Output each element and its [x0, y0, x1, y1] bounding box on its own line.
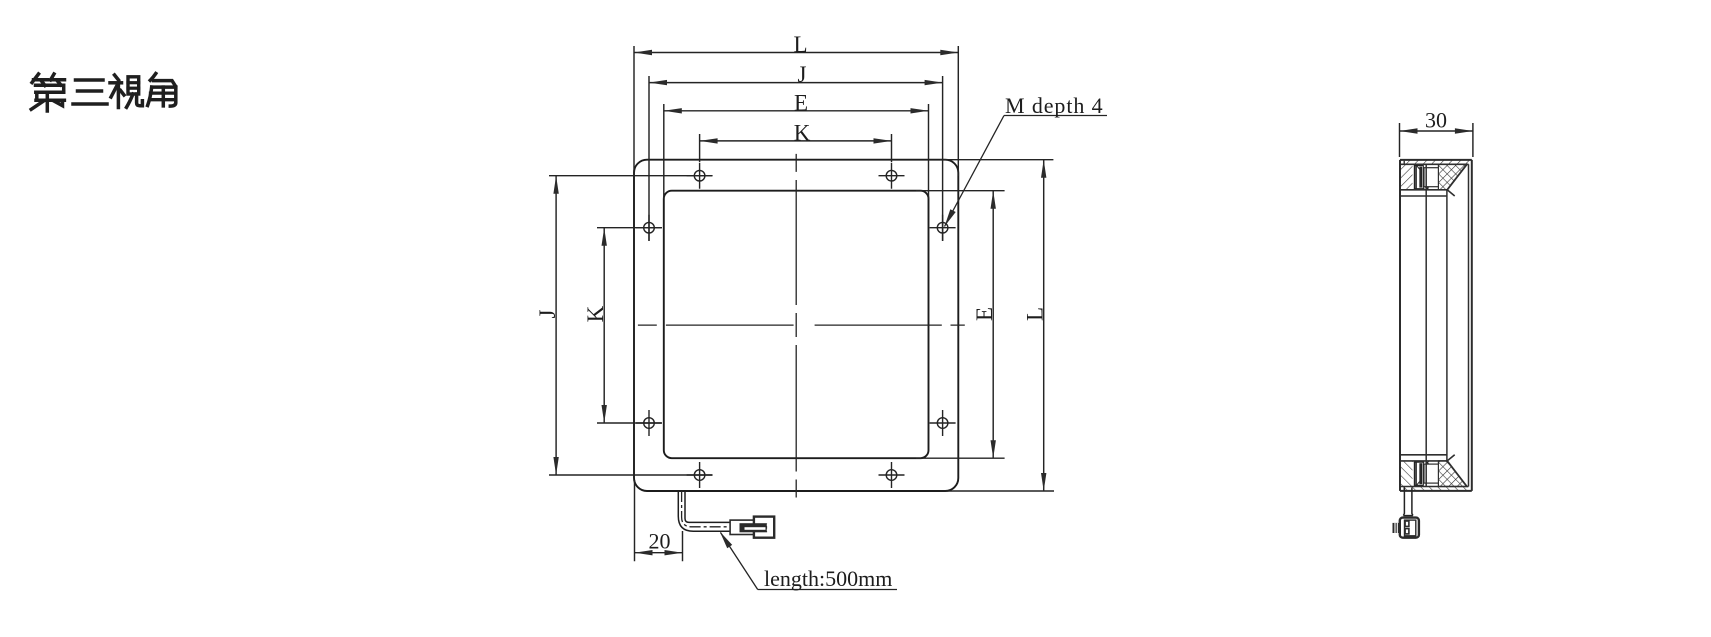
svg-text:30: 30 — [1425, 108, 1447, 133]
svg-text:length:500mm: length:500mm — [764, 566, 892, 591]
svg-text:J: J — [535, 309, 560, 318]
svg-text:E: E — [972, 307, 997, 321]
svg-text:M depth 4: M depth 4 — [1005, 93, 1104, 118]
svg-text:L: L — [1023, 307, 1048, 321]
svg-text:K: K — [583, 305, 608, 322]
svg-text:E: E — [794, 90, 808, 115]
svg-text:L: L — [793, 32, 807, 57]
svg-text:K: K — [794, 120, 811, 145]
svg-text:J: J — [798, 62, 807, 87]
svg-text:20: 20 — [649, 529, 671, 554]
